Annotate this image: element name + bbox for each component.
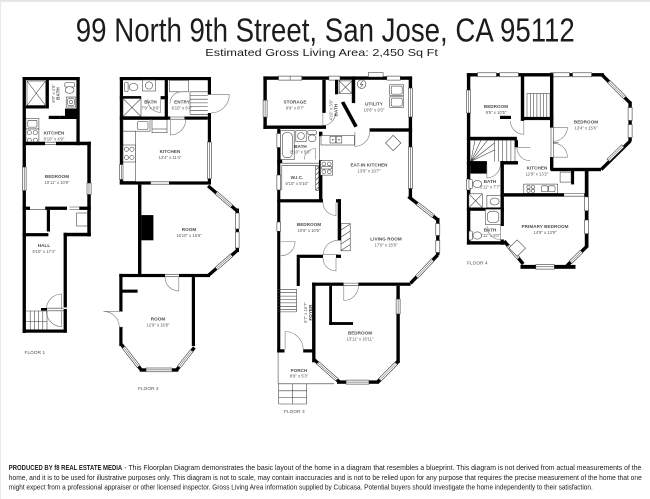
svg-text:6'10" x 6'4": 6'10" x 6'4" (172, 106, 193, 111)
svg-text:home, and it is to be used for: home, and it is to be used for illustrat… (9, 473, 642, 482)
svg-text:FLOOR 4: FLOOR 4 (467, 261, 488, 266)
svg-text:BEDROOM: BEDROOM (348, 331, 372, 336)
svg-text:BATH: BATH (56, 87, 61, 100)
svg-text:BEDROOM: BEDROOM (297, 222, 321, 227)
svg-text:13'4" x 15'6": 13'4" x 15'6" (575, 126, 598, 131)
svg-text:KITCHEN: KITCHEN (160, 149, 181, 154)
svg-text:8'9" x 4'9": 8'9" x 4'9" (51, 84, 56, 103)
svg-text:12'9" x 16'8": 12'9" x 16'8" (147, 323, 170, 328)
svg-text:4'10" x 3'9": 4'10" x 3'9" (329, 99, 334, 120)
svg-text:BATH: BATH (294, 144, 307, 149)
svg-text:PRIMARY BEDROOM: PRIMARY BEDROOM (522, 224, 569, 229)
svg-text:PRODUCED BY f8 REAL ESTATE MED: PRODUCED BY f8 REAL ESTATE MEDIA (9, 463, 123, 472)
svg-text:13'8" x 10'7": 13'8" x 10'7" (358, 169, 381, 174)
svg-text:11'9" x 13'2": 11'9" x 13'2" (526, 172, 549, 177)
svg-text:13'4" x 11'4": 13'4" x 11'4" (159, 155, 182, 160)
svg-text:6'10" x 17'4": 6'10" x 17'4" (33, 249, 56, 254)
svg-text:EAT-IN KITCHEN: EAT-IN KITCHEN (350, 163, 388, 168)
svg-text:Estimated Gross Living Area: 2: Estimated Gross Living Area: 2,450 Sq Ft (205, 47, 438, 59)
svg-text:FOYER: FOYER (308, 304, 313, 321)
svg-text:10'11" x 10'8": 10'11" x 10'8" (45, 180, 70, 185)
svg-text:PORCH: PORCH (291, 368, 308, 373)
svg-text:8'10" x 4'9": 8'10" x 4'9" (44, 137, 65, 142)
svg-text:13'11" x 16'11": 13'11" x 16'11" (346, 337, 374, 342)
svg-text:10'6" x 10'6": 10'6" x 10'6" (298, 228, 321, 233)
svg-text:14'9" x 13'9": 14'9" x 13'9" (534, 230, 557, 235)
svg-text:9'5" x 10'5": 9'5" x 10'5" (486, 110, 507, 115)
svg-text:BEDROOM: BEDROOM (45, 174, 69, 179)
svg-text:16'10" x 15'6": 16'10" x 15'6" (176, 233, 202, 238)
svg-text:6'7" x 16'7": 6'7" x 16'7" (303, 302, 308, 323)
svg-text:LIVING ROOM: LIVING ROOM (370, 237, 402, 242)
svg-text:10'6" x 9'3": 10'6" x 9'3" (364, 108, 385, 113)
svg-text:99 North 9th Street, San Jose,: 99 North 9th Street, San Jose, CA 95112 (76, 12, 575, 49)
svg-text:BATH: BATH (484, 228, 497, 233)
svg-text:FLOOR 2: FLOOR 2 (138, 386, 159, 391)
svg-text:- This Floorplan Diagram demon: - This Floorplan Diagram demonstrates th… (124, 463, 641, 472)
svg-text:5'11" x 6'0": 5'11" x 6'0" (480, 233, 501, 238)
svg-text:6'10" x 5'10": 6'10" x 5'10" (286, 181, 309, 186)
svg-text:BATH: BATH (333, 103, 338, 116)
svg-text:6'10" x 5'6": 6'10" x 5'6" (290, 150, 311, 155)
svg-text:17'0" x 15'6": 17'0" x 15'6" (375, 243, 398, 248)
svg-text:BEDROOM: BEDROOM (484, 104, 508, 109)
svg-text:KITCHEN: KITCHEN (527, 166, 548, 171)
svg-text:BATH: BATH (144, 100, 157, 105)
svg-text:ROOM: ROOM (151, 317, 166, 322)
svg-text:UTILITY: UTILITY (365, 102, 383, 107)
svg-text:HALL: HALL (38, 243, 51, 248)
svg-text:BEDROOM: BEDROOM (574, 120, 598, 125)
svg-text:ENTRY: ENTRY (174, 100, 190, 105)
svg-text:KITCHEN: KITCHEN (44, 131, 65, 136)
svg-text:BATH: BATH (484, 179, 497, 184)
svg-text:W.I.C.: W.I.C. (291, 175, 304, 180)
svg-text:5'11" x 7'7": 5'11" x 7'7" (480, 185, 501, 190)
svg-text:STORAGE: STORAGE (284, 100, 307, 105)
svg-text:FLOOR 1: FLOOR 1 (25, 350, 46, 355)
svg-text:7'9" x 6'6": 7'9" x 6'6" (141, 106, 160, 111)
svg-text:ROOM: ROOM (182, 227, 197, 232)
svg-text:8'9" x 5'3": 8'9" x 5'3" (290, 374, 309, 379)
svg-text:9'9" x 8'7": 9'9" x 8'7" (286, 106, 305, 111)
svg-text:FLOOR 3: FLOOR 3 (284, 409, 305, 414)
svg-text:might expect from a profession: might expect from a professional apprais… (9, 483, 593, 492)
